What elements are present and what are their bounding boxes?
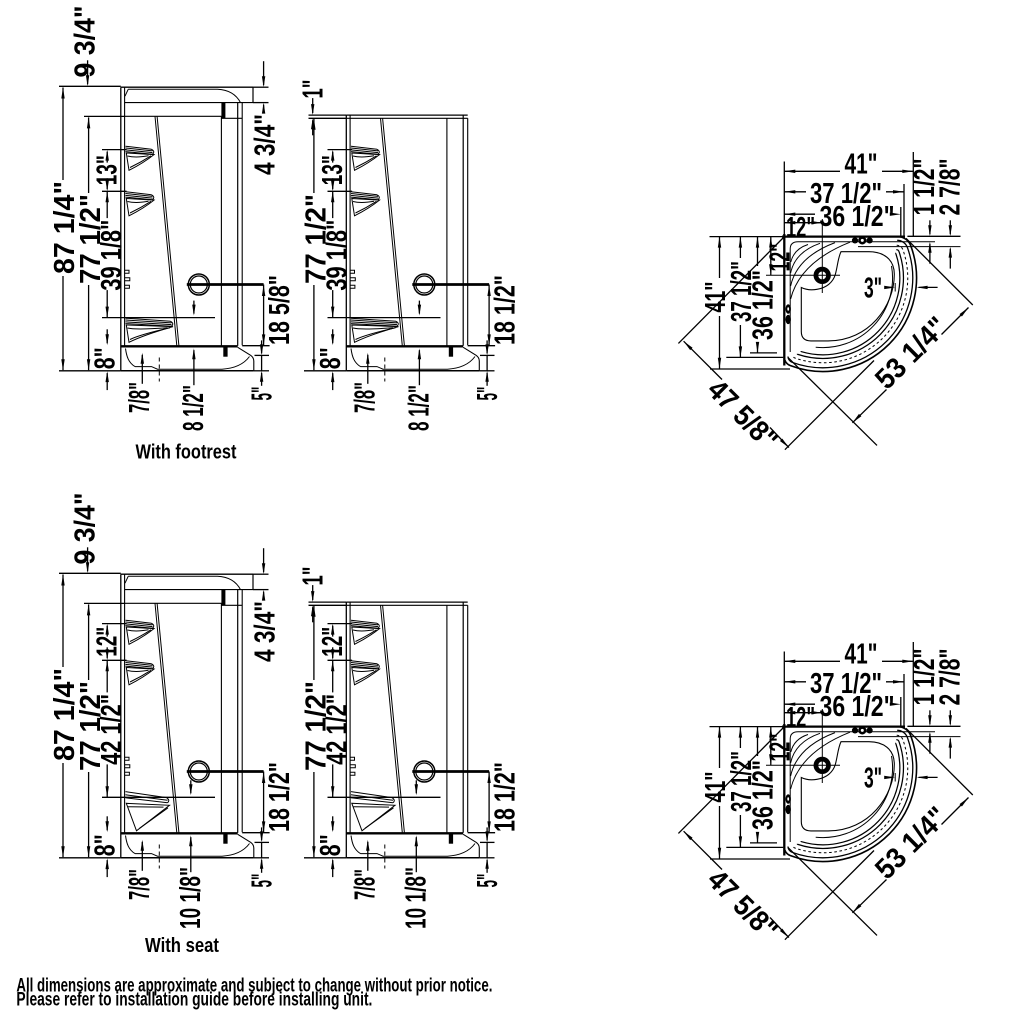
svg-text:1": 1" [298, 567, 330, 586]
svg-text:3": 3" [864, 273, 882, 305]
svg-text:12": 12" [765, 244, 797, 272]
svg-text:8": 8" [315, 834, 347, 856]
svg-text:4 3/4": 4 3/4" [250, 114, 282, 175]
svg-text:9 3/4": 9 3/4" [70, 6, 102, 78]
svg-text:42 1/2": 42 1/2" [322, 694, 354, 765]
svg-text:8": 8" [90, 347, 122, 369]
svg-text:53 1/4": 53 1/4" [869, 801, 954, 886]
svg-text:5": 5" [472, 387, 504, 401]
svg-text:36 1/2": 36 1/2" [820, 691, 895, 723]
svg-text:10 1/8": 10 1/8" [175, 867, 207, 929]
svg-text:39 1/8": 39 1/8" [96, 220, 128, 291]
svg-text:8 1/2": 8 1/2" [404, 385, 436, 431]
svg-text:10 1/8": 10 1/8" [401, 867, 433, 929]
svg-text:9 3/4": 9 3/4" [70, 493, 102, 565]
svg-text:13": 13" [92, 155, 124, 185]
svg-text:1": 1" [298, 80, 330, 99]
svg-text:5": 5" [247, 874, 279, 888]
svg-text:4 3/4": 4 3/4" [250, 601, 282, 662]
svg-text:5": 5" [247, 387, 279, 401]
svg-text:36 1/2": 36 1/2" [748, 760, 780, 830]
svg-text:Please refer to installation g: Please refer to installation guide befor… [16, 990, 372, 1011]
svg-text:8": 8" [315, 347, 347, 369]
svg-text:39 1/8": 39 1/8" [322, 220, 354, 291]
svg-text:12": 12" [92, 627, 124, 657]
svg-text:12": 12" [317, 627, 349, 657]
svg-text:With footrest: With footrest [136, 441, 237, 463]
svg-text:2 7/8": 2 7/8" [935, 159, 967, 216]
svg-text:7/8": 7/8" [350, 869, 382, 900]
svg-text:12": 12" [786, 212, 815, 244]
svg-text:13": 13" [317, 155, 349, 185]
svg-text:With seat: With seat [145, 935, 219, 957]
svg-text:8": 8" [90, 834, 122, 856]
svg-text:7/8": 7/8" [350, 382, 382, 413]
svg-text:42 1/2": 42 1/2" [96, 694, 128, 765]
svg-text:8 1/2": 8 1/2" [178, 385, 210, 431]
svg-text:12": 12" [786, 702, 815, 734]
svg-text:18 1/2": 18 1/2" [264, 762, 296, 832]
svg-text:18 1/2": 18 1/2" [490, 762, 522, 832]
svg-text:7/8": 7/8" [124, 382, 156, 413]
svg-text:53 1/4": 53 1/4" [869, 311, 954, 396]
svg-text:47 5/8": 47 5/8" [701, 374, 784, 457]
svg-text:36 1/2": 36 1/2" [820, 201, 895, 233]
svg-text:36 1/2": 36 1/2" [748, 270, 780, 340]
svg-text:7/8": 7/8" [124, 869, 156, 900]
svg-text:41": 41" [845, 149, 878, 181]
svg-text:5": 5" [472, 874, 504, 888]
svg-text:47 5/8": 47 5/8" [701, 864, 784, 947]
svg-text:18 5/8": 18 5/8" [264, 275, 296, 345]
svg-text:41": 41" [845, 639, 878, 671]
svg-text:3": 3" [864, 763, 882, 795]
svg-text:2 7/8": 2 7/8" [935, 649, 967, 706]
svg-text:12": 12" [765, 734, 797, 762]
svg-text:18 1/2": 18 1/2" [490, 275, 522, 345]
